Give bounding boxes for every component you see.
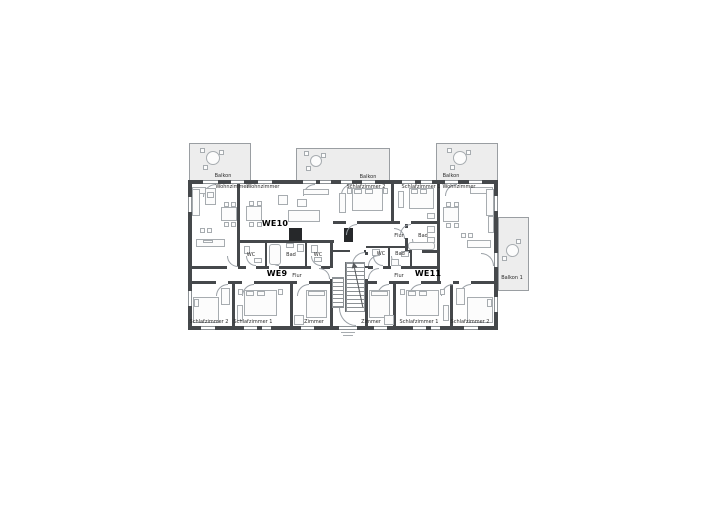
chair: [516, 239, 521, 244]
pillow: [194, 299, 199, 307]
window: [464, 326, 478, 330]
nightstand: [400, 289, 405, 295]
room-label-schlafzimmer1-we9: Schlafzimmer 1: [234, 320, 273, 325]
wall: [290, 284, 293, 326]
room-label-wohnzimmer-we11: Wohnzimmer: [443, 185, 476, 190]
chair: [446, 223, 451, 228]
chair: [454, 202, 459, 207]
chair: [249, 222, 254, 227]
stairs-flight-left: [332, 277, 344, 308]
pillow: [257, 291, 265, 296]
toilet: [427, 226, 435, 233]
stool: [200, 228, 205, 233]
nightstand: [440, 289, 445, 295]
window: [188, 291, 192, 306]
wall: [265, 243, 267, 267]
room-label-bad-we10-right: Bad: [418, 234, 428, 239]
stairs-divider: [345, 262, 346, 312]
bathtub: [269, 244, 281, 265]
chimney-shaft: [289, 228, 302, 241]
balcony-door-gap: [494, 253, 498, 267]
chair: [200, 148, 205, 153]
chair: [321, 153, 326, 158]
pillow: [308, 291, 325, 296]
room-label-schlafzimmer1-we10: Schlafzimmer 1: [402, 185, 441, 190]
door-gap: [391, 266, 401, 269]
nightstand: [278, 289, 283, 295]
stairs-arrow-head: [350, 261, 357, 268]
wardrobe: [221, 288, 230, 305]
room-label-zimmer-we9: Zimmer: [304, 320, 324, 325]
round-table: [506, 244, 519, 257]
stool: [207, 228, 212, 233]
room-label-wohnzimmer-we9: Wohnzimmer: [216, 185, 249, 190]
sink: [286, 243, 294, 248]
chair: [304, 151, 309, 156]
chair: [231, 222, 236, 227]
unit-label-we9: WE9: [267, 270, 287, 278]
chair: [231, 202, 236, 207]
window: [494, 196, 498, 211]
window: [413, 326, 426, 330]
room-label-zimmer-we11: Zimmer: [361, 320, 381, 325]
window: [244, 326, 257, 330]
window: [320, 180, 331, 184]
chair: [446, 202, 451, 207]
room-label-bad-we10: Bad: [286, 253, 296, 258]
window: [262, 326, 271, 330]
entrance-step: [343, 335, 353, 336]
chair: [502, 256, 507, 261]
bathtub: [408, 242, 435, 250]
wardrobe: [398, 191, 404, 208]
dining-table: [246, 206, 262, 221]
door-gap: [246, 266, 256, 269]
window: [201, 326, 215, 330]
wall: [388, 248, 390, 266]
wardrobe: [456, 288, 465, 305]
room-label-flur-we11: Flur: [394, 274, 404, 279]
wardrobe: [339, 193, 346, 213]
entrance-door-gap: [339, 326, 357, 330]
chair: [224, 202, 229, 207]
wall: [237, 184, 240, 266]
sofa: [288, 210, 320, 222]
desk: [384, 315, 394, 325]
toilet: [297, 244, 304, 252]
pillow: [371, 291, 388, 296]
dining-table: [221, 207, 237, 221]
room-label-flur-we9: Flur: [292, 274, 302, 279]
sideboard: [467, 240, 491, 248]
window: [374, 326, 387, 330]
pillow: [246, 291, 254, 296]
pillow: [408, 291, 416, 296]
stool: [468, 233, 473, 238]
nightstand: [238, 289, 243, 295]
window: [431, 326, 440, 330]
room-label-flur-we10: Flur: [394, 234, 404, 239]
stool: [461, 233, 466, 238]
corner-sofa: [192, 189, 200, 216]
room-label-balkon-tl: Balkon: [215, 174, 232, 179]
wall: [305, 243, 307, 267]
room-label-schlafzimmer2-we10: Schlafzimmer 2: [347, 185, 386, 190]
cabinet-shelf: [207, 192, 214, 198]
chair: [306, 166, 311, 171]
chair: [454, 223, 459, 228]
room-label-wohnzimmer-we10: Wohnzimmer: [247, 185, 280, 190]
tv-board: [488, 216, 494, 233]
unit-label-we11: WE11: [415, 270, 441, 278]
wall: [191, 281, 332, 284]
chair: [466, 150, 471, 155]
room-label-schlafzimmer1-we11: Schlafzimmer 1: [400, 320, 439, 325]
chair: [203, 165, 208, 170]
room-label-wc-we11: WC: [377, 252, 385, 257]
chair: [249, 201, 254, 206]
chair: [224, 222, 229, 227]
entrance-step: [341, 332, 355, 333]
armchair: [278, 195, 288, 205]
room-label-balkon1: Balkon 1: [501, 276, 523, 281]
pillow: [419, 291, 427, 296]
round-table: [453, 151, 467, 165]
cabinet: [427, 213, 435, 219]
room-label-balkon-tr: Balkon: [443, 174, 460, 179]
room-label-schlafzimmer2-we11: Schlafzimmer 2: [451, 320, 490, 325]
toilet: [391, 259, 399, 266]
wall: [391, 184, 394, 221]
pillow: [487, 299, 492, 307]
tv: [203, 240, 213, 243]
desk: [294, 315, 304, 325]
room-label-bad-we11: Bad: [395, 252, 405, 257]
floor-plan: Balkon Wohnzimmer Wohnzimmer Balkon Schl…: [0, 0, 720, 509]
chair: [257, 201, 262, 206]
unit-label-we10: WE10: [262, 220, 288, 228]
room-label-schlafzimmer2-we9: Schlafzimmer 2: [190, 320, 229, 325]
chair: [447, 148, 452, 153]
chair: [450, 165, 455, 170]
room-label-wc-left: WC: [247, 253, 255, 258]
chair: [219, 150, 224, 155]
coffee-table: [297, 199, 307, 207]
sink: [254, 258, 262, 263]
window: [494, 297, 498, 312]
tv-bench: [303, 189, 329, 195]
wardrobe: [443, 305, 449, 321]
corner-sofa: [486, 189, 494, 216]
window: [301, 326, 314, 330]
dining-table: [443, 207, 459, 222]
room-label-balkon-tc: Balkon: [360, 175, 377, 180]
room-label-wc-right: WC: [314, 253, 322, 258]
door-gap: [412, 250, 422, 253]
round-table: [206, 151, 220, 165]
